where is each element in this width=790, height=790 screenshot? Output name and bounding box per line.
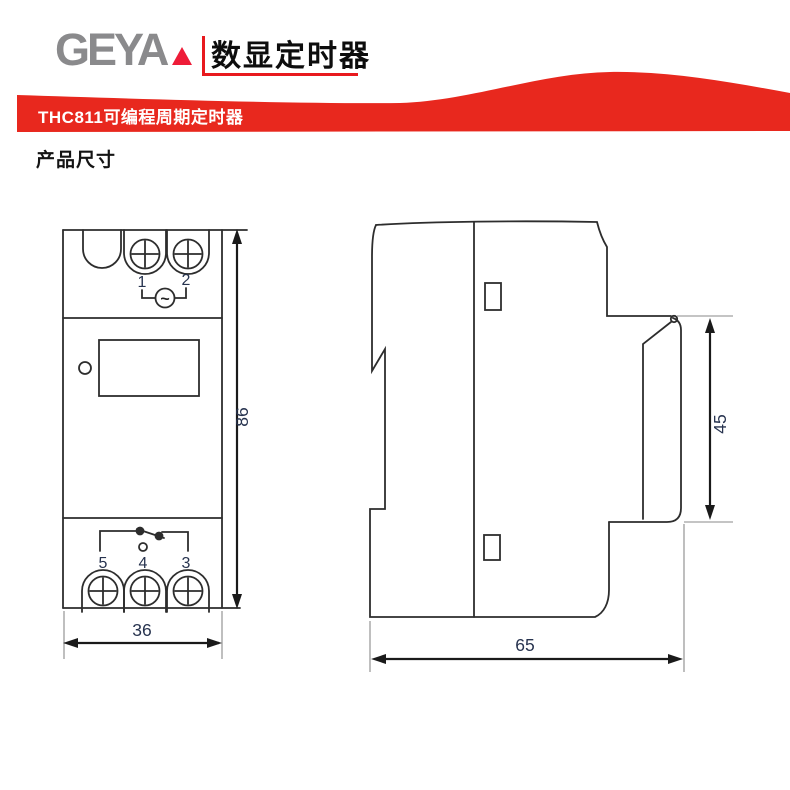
terminal-1: [124, 230, 166, 274]
terminal-4-label: 4: [139, 555, 148, 572]
terminal-3-label: 3: [182, 555, 191, 572]
side-slot-lower: [484, 535, 500, 560]
dim-36-label: 36: [132, 620, 151, 640]
ac-symbol-label: ~: [160, 291, 169, 308]
led-indicator: [79, 362, 91, 374]
relay-contact-symbol: [100, 528, 188, 552]
dimension-65: 65: [370, 524, 684, 672]
front-view-drawing: [63, 230, 247, 612]
terminal-5: [82, 570, 124, 612]
dimension-drawings: 86 36 45 65 1 2 ~ 5 4 3: [0, 200, 790, 700]
dimension-45: 45: [677, 316, 733, 522]
dim-65-label: 65: [515, 635, 534, 655]
top-slot: [83, 230, 121, 268]
banner-title: THC811可编程周期定时器: [38, 103, 243, 128]
terminal-1-label: 1: [138, 274, 147, 291]
dim-45-label: 45: [710, 414, 730, 433]
din-clip-housing: [609, 318, 681, 522]
terminal-5-label: 5: [99, 555, 108, 572]
terminal-2-label: 2: [182, 272, 191, 289]
dimension-86: 86: [232, 229, 252, 609]
section-heading: 产品尺寸: [36, 145, 116, 172]
terminal-3: [167, 570, 209, 612]
terminal-2: [167, 230, 209, 274]
dimension-36: 36: [63, 611, 222, 659]
side-slot-upper: [485, 283, 501, 310]
display-window: [99, 340, 199, 396]
side-view-drawing: [370, 221, 681, 617]
dim-86-label: 86: [232, 407, 252, 426]
terminal-4: [124, 570, 166, 612]
din-clip-blade: [643, 322, 671, 519]
